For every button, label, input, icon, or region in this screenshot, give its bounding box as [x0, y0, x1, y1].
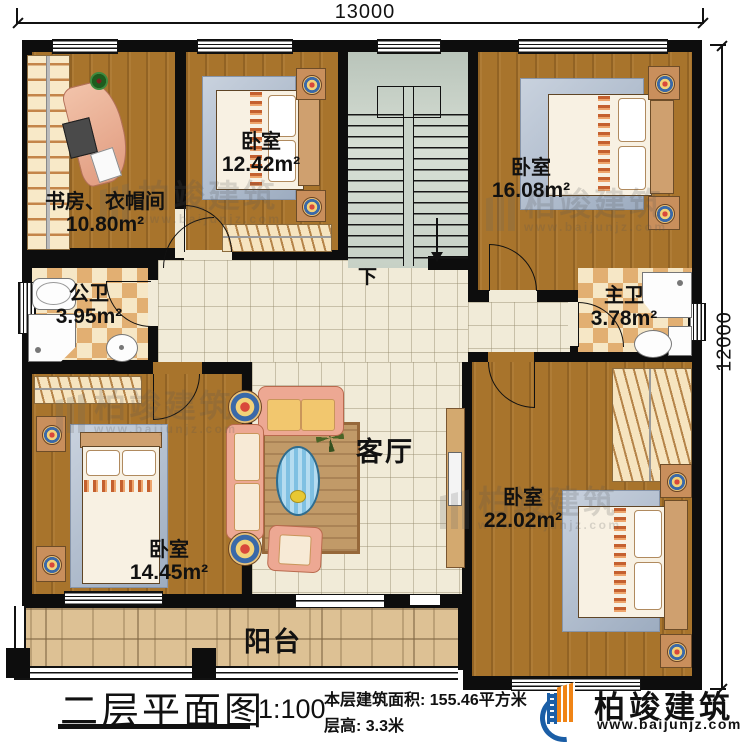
bed-headboard: [664, 500, 688, 630]
window-bedroom12-top: [197, 39, 293, 54]
label-bedroom-top-right: 卧室 16.08m²: [466, 158, 596, 202]
label-balcony: 阳台: [244, 620, 302, 659]
stair-arrow-head: [431, 252, 443, 268]
nightstand: [648, 196, 680, 230]
floor-height-text: 层高: 3.3米: [324, 712, 404, 736]
coffee-table: [276, 446, 320, 516]
study-plant: [90, 72, 108, 90]
bed-pillow: [86, 450, 120, 476]
brand-logo-icon: [540, 680, 590, 738]
plan-title-underline: [58, 724, 250, 729]
bed-headboard: [650, 100, 674, 194]
bedroom12-wardrobe: [222, 224, 332, 252]
balcony-post: [192, 648, 216, 678]
sofa-loveseat: [258, 386, 344, 436]
balcony-sliding-door: [296, 594, 384, 608]
nightstand: [660, 634, 692, 668]
bed-blanket-stripe: [614, 508, 626, 614]
sofa-left: [226, 424, 264, 540]
bed-pillow: [122, 450, 156, 476]
dimension-top-value: 13000: [300, 1, 430, 24]
nightstand: [36, 546, 66, 582]
coffee-table-decor: [290, 490, 306, 503]
armchair: [267, 525, 323, 574]
nightstand: [296, 68, 326, 100]
bed-pillow: [618, 146, 646, 190]
stair-landing-outline: [377, 86, 441, 118]
floor-plan-page: 13000 12000 下: [0, 0, 750, 747]
bed-pillow: [634, 510, 662, 558]
nightstand: [648, 66, 680, 100]
plan-scale: 1:100: [258, 694, 326, 725]
window-stair-top: [377, 39, 441, 54]
bed-blanket-stripe: [84, 480, 156, 492]
corridor-floor: [468, 302, 570, 352]
brand-website: www.baijunjz.com: [597, 716, 742, 732]
label-living-room: 客厅: [356, 430, 414, 469]
dimension-right-value: 12000: [714, 297, 737, 387]
opening-bedroom22: [488, 352, 534, 362]
floor-area-text: 本层建筑面积: 155.46平方米: [324, 686, 527, 710]
bedroom14-wardrobe: [34, 376, 142, 404]
balcony-post: [6, 648, 30, 678]
toilet-bowl: [634, 330, 672, 358]
bed-pillow: [618, 98, 646, 142]
bed-pillow: [634, 562, 662, 610]
window-bedroom16-top: [518, 39, 668, 54]
side-table: [228, 390, 262, 424]
balcony-opening-small: [410, 595, 440, 605]
label-master-bathroom: 主卫 3.78m²: [566, 286, 682, 330]
label-bedroom-top-middle: 卧室 12.42m²: [196, 132, 326, 176]
label-bedroom-bottom-right: 卧室 22.02m²: [458, 488, 588, 532]
sink: [106, 334, 138, 362]
label-study: 书房、衣帽间 10.80m²: [20, 192, 190, 236]
balcony-floor: [22, 608, 458, 666]
stair-arrow-shaft: [436, 218, 438, 252]
window-study-top: [52, 39, 118, 54]
opening-bedroom14: [153, 362, 202, 374]
nightstand: [660, 464, 692, 498]
bed-blanket-stripe: [598, 96, 610, 192]
stair-down-label: 下: [358, 262, 377, 289]
balcony-rail-bottom: [14, 666, 458, 680]
nightstand: [36, 416, 66, 452]
nightstand: [296, 190, 326, 222]
opening-bedroom16: [489, 290, 537, 302]
hallway-floor: [158, 260, 468, 362]
window-bedroom14-bottom: [64, 591, 163, 606]
label-public-bathroom: 公卫 3.95m²: [34, 284, 144, 328]
label-bedroom-bottom-left: 卧室 14.45m²: [104, 540, 234, 584]
